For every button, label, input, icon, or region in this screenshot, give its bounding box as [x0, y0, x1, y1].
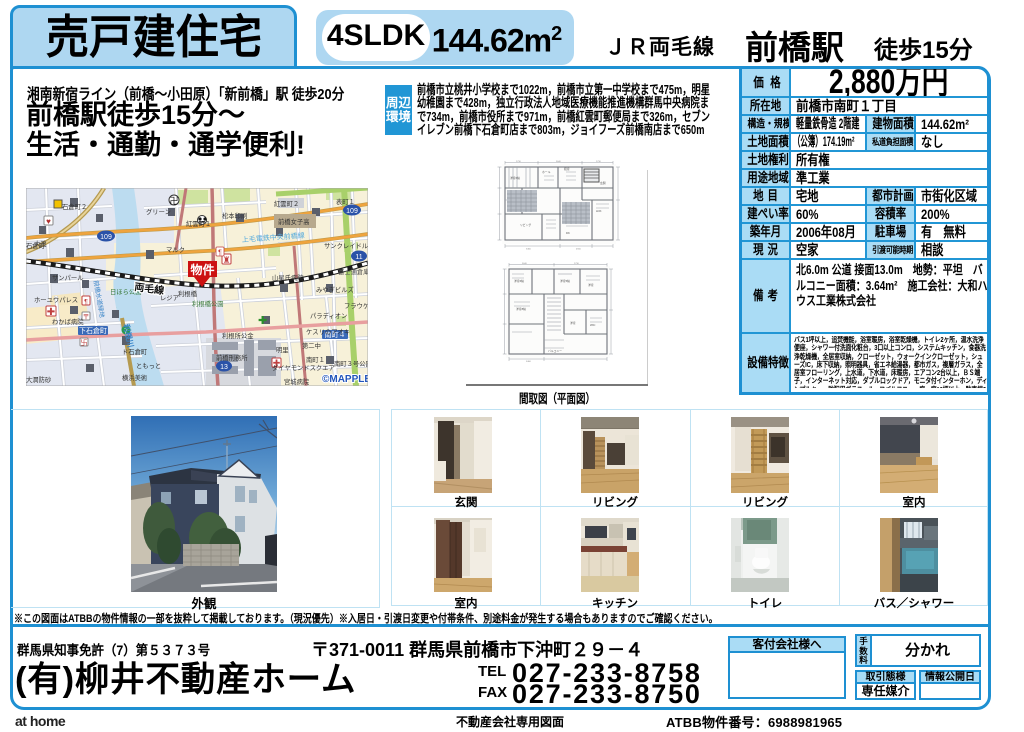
svg-text:松本印刷: 松本印刷 [222, 211, 247, 220]
svg-text:WIC: WIC [590, 323, 595, 327]
svg-text:南町１: 南町１ [306, 355, 325, 364]
svg-text:サンクレイドル: サンクレイドル [324, 242, 368, 250]
svg-text:富士通倉庫: 富士通倉庫 [338, 267, 368, 276]
svg-text:大渡: 大渡 [34, 239, 47, 248]
svg-text:2730: 2730 [574, 263, 580, 265]
svg-text:4550: 4550 [576, 249, 582, 251]
svg-text:宮城病院: 宮城病院 [284, 377, 310, 386]
svg-text:横浜美術: 横浜美術 [122, 373, 148, 382]
svg-text:ともっと: ともっと [136, 362, 161, 370]
svg-text:洋室6帖: 洋室6帖 [510, 176, 520, 180]
svg-text:3640: 3640 [556, 161, 562, 163]
svg-text:紅雲町２: 紅雲町２ [274, 199, 299, 208]
svg-text:紅雲町１: 紅雲町１ [186, 219, 211, 228]
svg-text:利根橋: 利根橋 [178, 289, 198, 298]
svg-text:〒: 〒 [83, 314, 90, 321]
svg-text:利根橋公園: 利根橋公園 [192, 299, 223, 308]
svg-text:5460: 5460 [526, 249, 532, 251]
svg-text:サンパール: サンパール [52, 274, 83, 282]
svg-text:バルコニー: バルコニー [548, 349, 562, 353]
svg-text:卐: 卐 [81, 339, 88, 347]
svg-text:2730: 2730 [596, 161, 602, 163]
svg-text:ホール: ホール [542, 170, 551, 174]
svg-text:5460: 5460 [526, 361, 532, 362]
svg-text:♜: ♜ [222, 255, 230, 265]
svg-text:フラウゲン: フラウゲン [344, 301, 368, 310]
svg-text:南町３号公園: 南町３号公園 [334, 359, 368, 368]
svg-text:石倉町２: 石倉町２ [62, 202, 87, 211]
svg-text:利根所公金: 利根所公金 [222, 331, 254, 340]
svg-text:洋室5帖: 洋室5帖 [560, 279, 570, 283]
svg-text:©MAPPLE: ©MAPPLE [322, 374, 368, 385]
svg-text:2730: 2730 [516, 161, 522, 163]
svg-text:11: 11 [355, 254, 362, 261]
svg-text:DK: DK [566, 231, 570, 235]
svg-text:明里: 明里 [276, 346, 289, 354]
svg-text:表町１: 表町１ [336, 197, 355, 206]
svg-text:ド石倉町: ド石倉町 [122, 347, 148, 356]
svg-text:¶: ¶ [218, 250, 222, 257]
svg-text:グリーン: グリーン [146, 207, 171, 216]
svg-text:✚: ✚ [47, 307, 55, 318]
svg-text:物件: 物件 [190, 262, 214, 277]
svg-text:ダイヤモンドスクエア: ダイヤモンドスクエア [272, 363, 335, 372]
svg-text:大潤防砂: 大潤防砂 [26, 375, 52, 384]
svg-text:ホーユウパレス: ホーユウパレス [34, 296, 78, 304]
svg-text:洋室: 洋室 [570, 321, 576, 325]
svg-text:第二中: 第二中 [302, 341, 321, 350]
svg-text:わかば病院: わかば病院 [52, 317, 84, 326]
svg-text:¶: ¶ [84, 299, 88, 306]
svg-text:13: 13 [220, 364, 228, 371]
svg-text:洋室8帖: 洋室8帖 [516, 307, 526, 311]
svg-text:パラディオン: パラディオン [310, 311, 347, 320]
svg-text:前橋女子高: 前橋女子高 [278, 217, 309, 226]
svg-text:3640: 3640 [522, 263, 528, 265]
svg-text:洋室: 洋室 [588, 283, 594, 287]
svg-text:洋室6帖: 洋室6帖 [514, 279, 524, 283]
svg-text:卍: 卍 [169, 196, 178, 206]
svg-text:玄関: 玄関 [600, 181, 606, 185]
svg-text:109: 109 [100, 234, 112, 241]
svg-text:下石倉町: 下石倉町 [79, 326, 107, 335]
svg-text:前橋刑務所: 前橋刑務所 [216, 353, 248, 362]
svg-text:♥: ♥ [46, 217, 51, 226]
svg-text:山星氏病院: 山星氏病院 [272, 273, 304, 282]
svg-text:和室: 和室 [564, 167, 570, 171]
svg-text:109: 109 [346, 208, 358, 215]
svg-text:マルク: マルク [166, 246, 185, 254]
svg-text:ケスリのアオキ: ケスリのアオキ [306, 328, 350, 336]
svg-text:リビング: リビング [520, 223, 531, 227]
svg-text:LDK: LDK [596, 209, 602, 213]
svg-text:みやぎビルズ: みやぎビルズ [316, 285, 354, 294]
svg-text:✚: ✚ [258, 315, 267, 327]
